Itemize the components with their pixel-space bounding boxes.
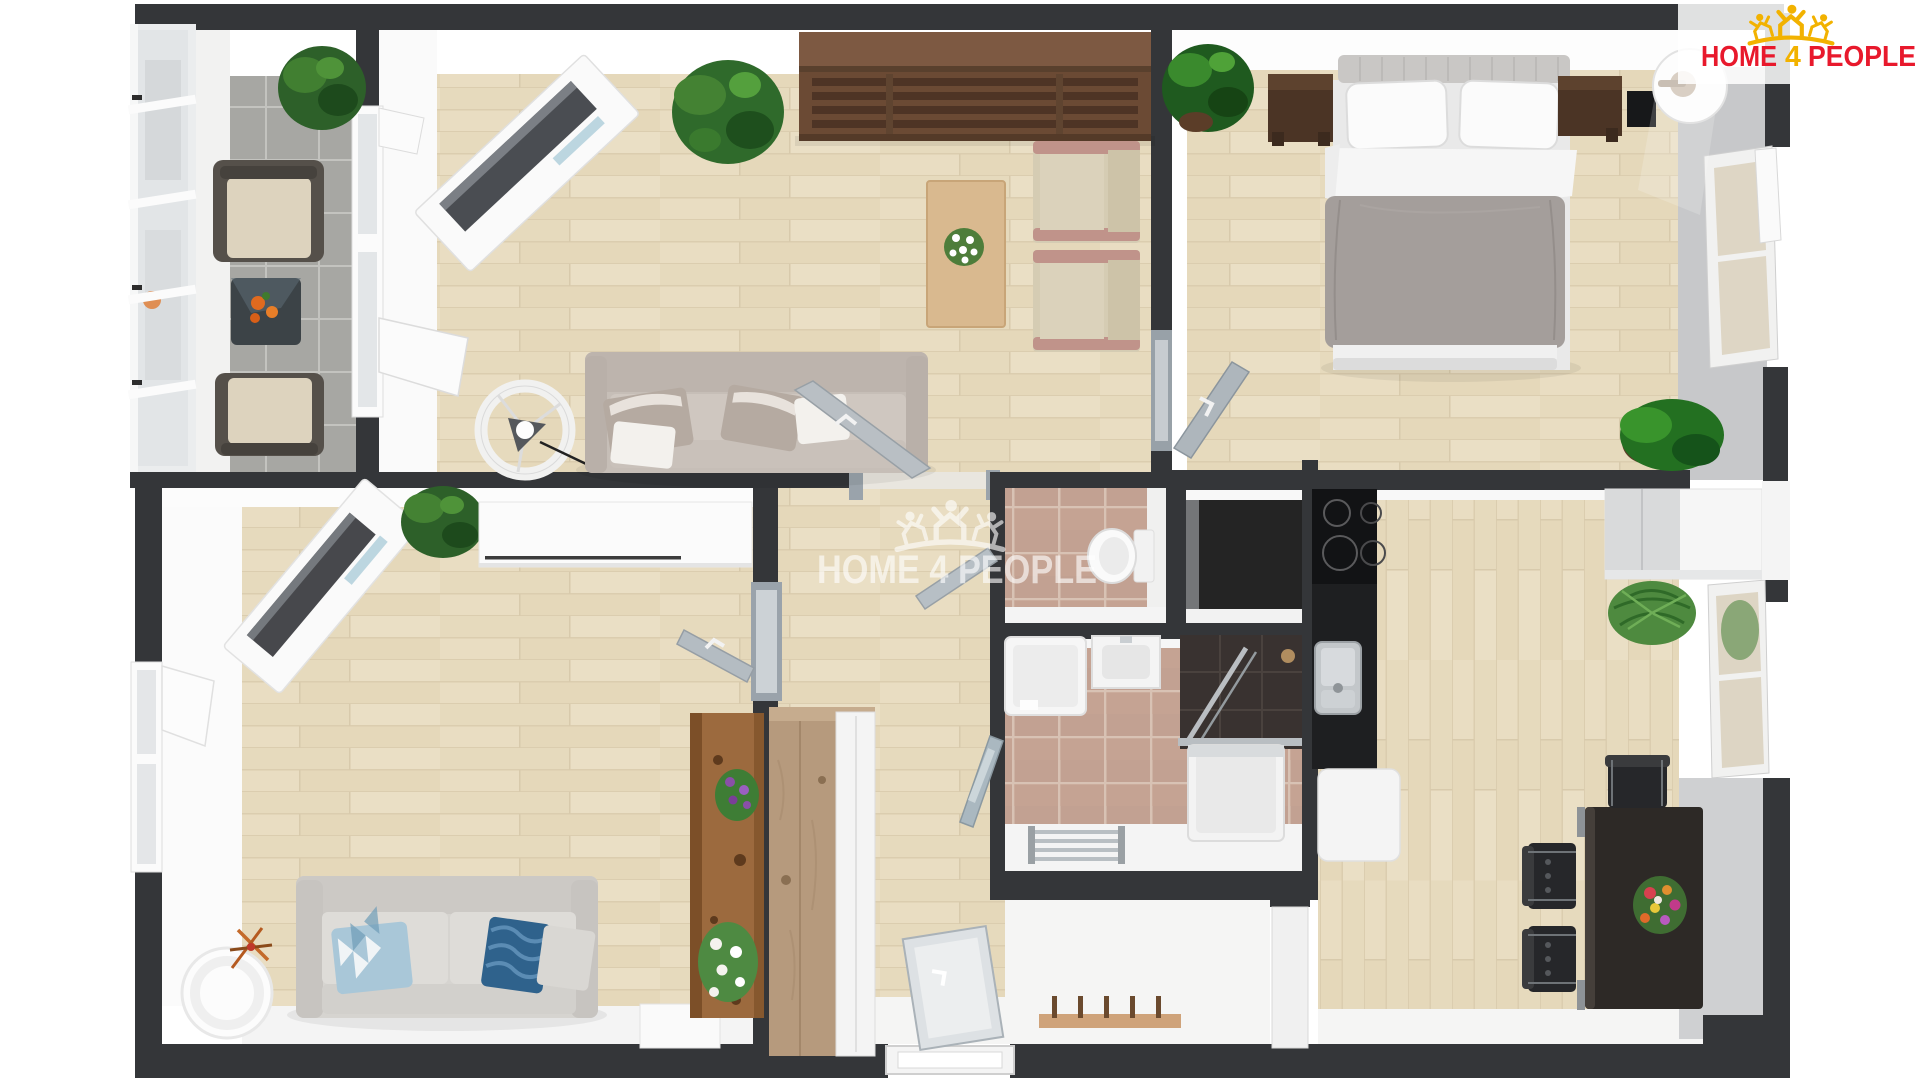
svg-text:4: 4 <box>1785 41 1801 73</box>
svg-text:HOME 4 PEOPLE: HOME 4 PEOPLE <box>817 548 1097 592</box>
svg-text:PEOPLE: PEOPLE <box>1808 41 1916 73</box>
svg-text:HOME: HOME <box>1701 41 1777 73</box>
